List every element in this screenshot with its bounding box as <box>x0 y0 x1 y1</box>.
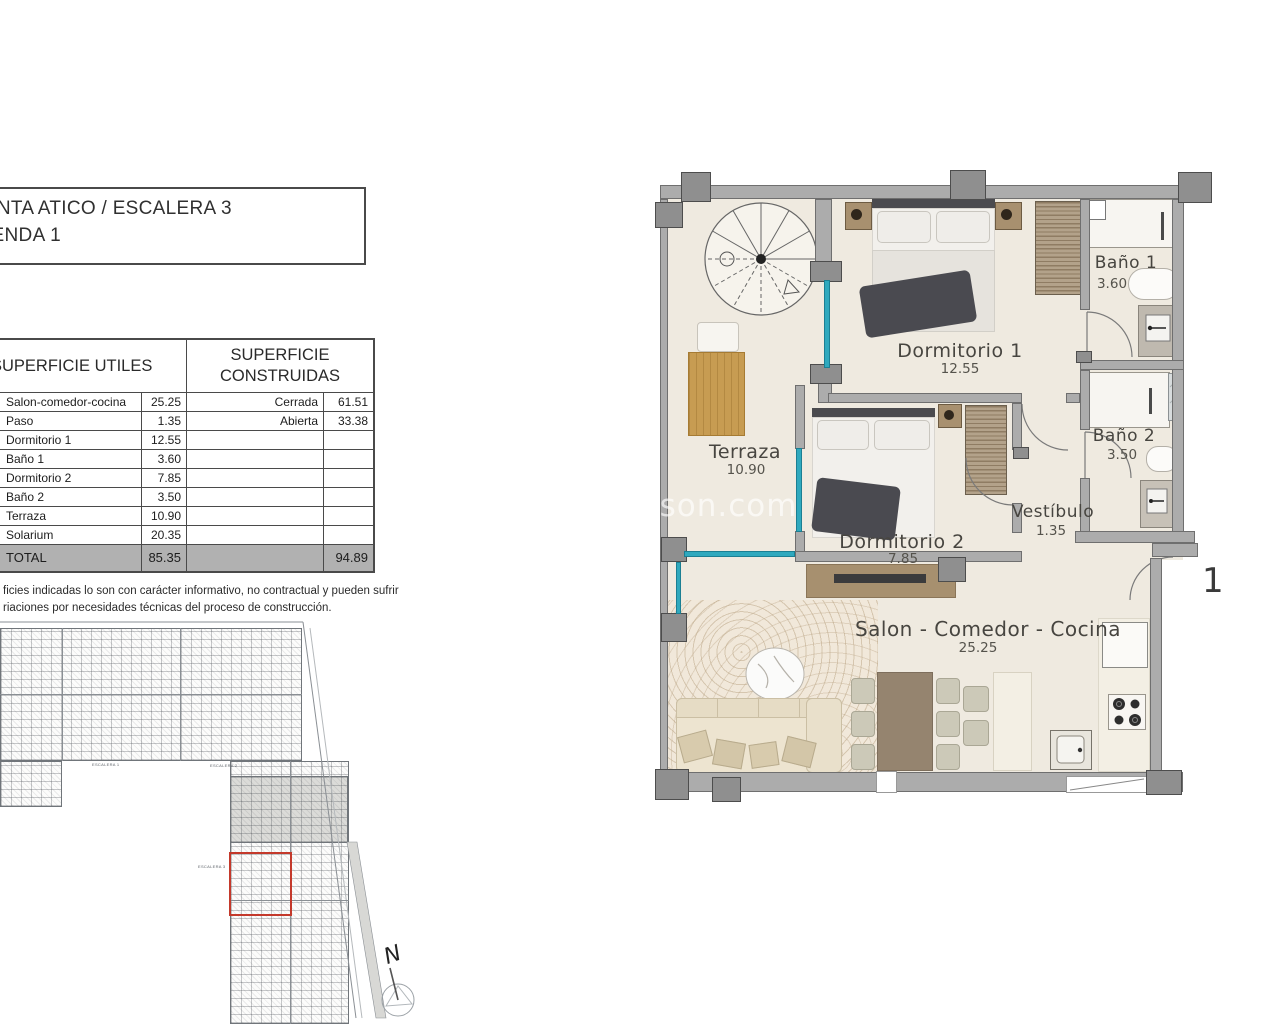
column-stub <box>661 613 687 642</box>
wall-segment <box>1152 543 1198 557</box>
escalera-1-label: ESCALERA 1 <box>92 762 119 767</box>
north-compass-icon: N <box>381 941 414 1016</box>
column-stub <box>655 769 689 800</box>
room-area-salon: 25.25 <box>959 640 998 656</box>
unit-highlight-rectangle <box>229 852 292 916</box>
row-value: 25.25 <box>142 393 187 412</box>
room-area-vestibulo: 1.35 <box>1036 523 1066 539</box>
plan-sheet: LANTA ATICO / ESCALERA 3 VIENDA 1 SUPERF… <box>0 0 1280 1024</box>
siteplan-divider <box>0 694 302 695</box>
room-area-terraza: 10.90 <box>727 462 766 478</box>
construidas-value: 33.38 <box>324 412 373 431</box>
row-value: 10.90 <box>142 507 187 526</box>
areas-table: SUPERFICIE UTILES SUPERFICIE CONSTRUIDAS… <box>0 338 375 573</box>
disclaimer-line1: ficies indicadas lo son con carácter inf… <box>3 583 399 600</box>
row-name: Solarium <box>0 526 142 545</box>
wall-segment <box>1066 393 1080 403</box>
wall-segment <box>1075 531 1195 543</box>
total-utiles: 85.35 <box>142 545 187 571</box>
room-area-bano2: 3.50 <box>1107 447 1137 463</box>
room-area-dormitorio2: 7.85 <box>888 551 918 567</box>
row-name: Terraza <box>0 507 142 526</box>
room-label-vestibulo: Vestíbulo <box>1012 502 1094 522</box>
wall-segment <box>1172 199 1184 557</box>
siteplan-boundary: N <box>0 616 430 1024</box>
wall-segment <box>1080 199 1090 310</box>
column-stub <box>1146 770 1182 795</box>
column-stub <box>938 557 966 582</box>
room-area-dormitorio1: 12.55 <box>941 361 980 377</box>
row-name: Salon-comedor-cocina <box>0 393 142 412</box>
watermark: lson.com <box>650 488 797 524</box>
row-name: Paso <box>0 412 142 431</box>
total-construidas: 94.89 <box>324 545 373 571</box>
row-value: 12.55 <box>142 431 187 450</box>
wall-segment <box>1012 403 1022 450</box>
column-stub <box>950 170 986 200</box>
door-jamb <box>1076 351 1092 363</box>
door-jamb <box>1013 447 1029 459</box>
svg-text:N: N <box>381 941 405 970</box>
disclaimer-line2: riaciones por necesidades técnicas del p… <box>3 600 399 617</box>
room-label-dormitorio1: Dormitorio 1 <box>897 340 1022 362</box>
row-value: 3.60 <box>142 450 187 469</box>
wall-segment <box>1080 360 1184 370</box>
wall-segment <box>660 185 1186 199</box>
room-label-bano1: Baño 1 <box>1095 253 1157 273</box>
row-name: Baño 1 <box>0 450 142 469</box>
construidas-value: 61.51 <box>324 393 373 412</box>
column-stub <box>712 777 741 802</box>
row-value: 7.85 <box>142 469 187 488</box>
column-stub <box>655 202 683 228</box>
header-superficie-construidas: SUPERFICIE CONSTRUIDAS <box>187 340 373 393</box>
room-label-salon: Salon - Comedor - Cocina <box>855 617 1121 641</box>
room-label-dormitorio2: Dormitorio 2 <box>839 531 964 553</box>
wall-opening <box>876 771 897 793</box>
escalera-3-label: ESCALERA 3 <box>198 864 225 869</box>
row-name: Dormitorio 2 <box>0 469 142 488</box>
column-stub <box>661 537 687 562</box>
total-label: TOTAL <box>0 545 142 571</box>
window-glazing <box>824 280 830 368</box>
header-superficie-utiles: SUPERFICIE UTILES <box>0 340 187 393</box>
row-name: Dormitorio 1 <box>0 431 142 450</box>
column-stub <box>681 172 711 202</box>
balcony-shelf <box>1066 776 1150 793</box>
escalera-2-label: ESCALERA 2 <box>210 763 237 768</box>
window-glazing <box>684 551 795 557</box>
stair-core-number: 1 <box>1202 561 1224 601</box>
row-value: 3.50 <box>142 488 187 507</box>
column-stub <box>1178 172 1212 203</box>
disclaimer: ficies indicadas lo son con carácter inf… <box>3 583 399 617</box>
title-box: LANTA ATICO / ESCALERA 3 VIENDA 1 <box>0 187 366 265</box>
row-value: 20.35 <box>142 526 187 545</box>
row-name: Baño 2 <box>0 488 142 507</box>
wall-segment <box>795 385 805 449</box>
plan-title-line2: VIENDA 1 <box>0 225 61 247</box>
room-label-terraza: Terraza <box>709 441 781 463</box>
wall-segment <box>1150 558 1162 774</box>
plan-title-line1: LANTA ATICO / ESCALERA 3 <box>0 198 232 220</box>
room-label-bano2: Baño 2 <box>1093 426 1155 446</box>
wall-segment <box>1080 370 1090 430</box>
wall-segment <box>828 393 1022 403</box>
row-value: 1.35 <box>142 412 187 431</box>
window-glazing <box>676 562 681 614</box>
construidas-name: Abierta <box>187 412 324 431</box>
construidas-name: Cerrada <box>187 393 324 412</box>
wall-segment <box>815 199 832 263</box>
room-area-bano1: 3.60 <box>1097 276 1127 292</box>
column-stub <box>810 261 842 282</box>
